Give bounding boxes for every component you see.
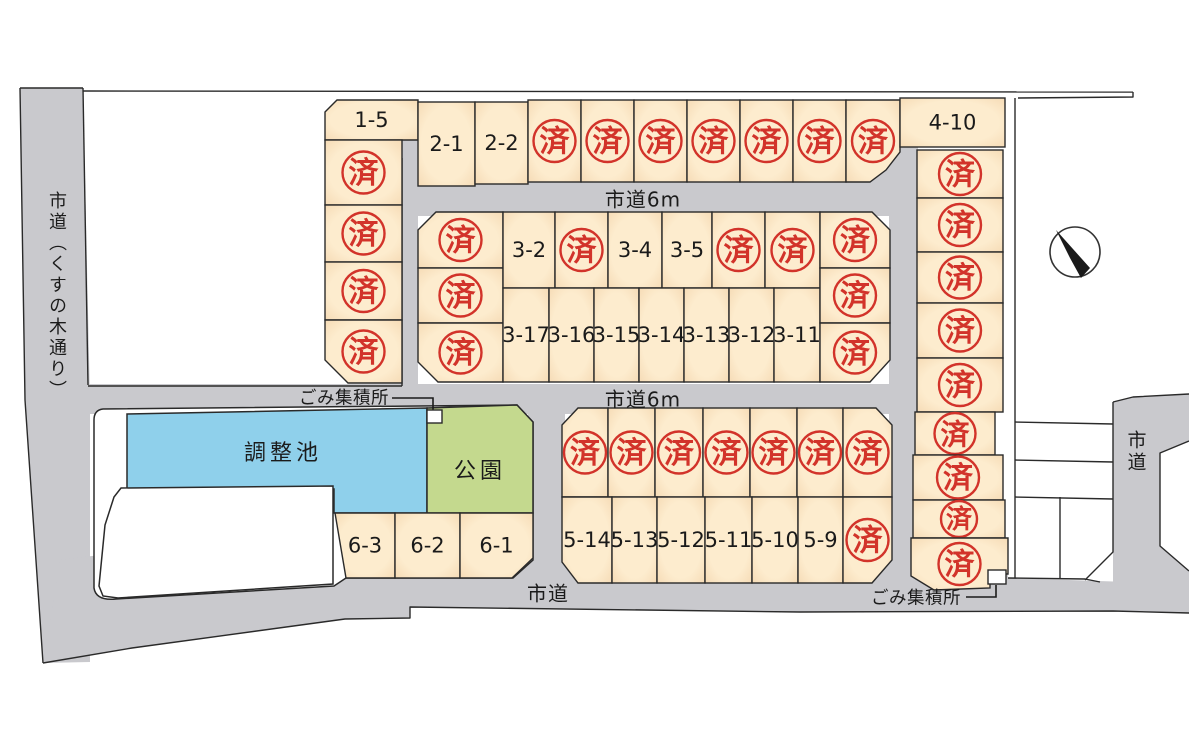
sold-stamp-text: 済 xyxy=(446,224,477,259)
sold-stamp-text: 済 xyxy=(805,436,836,471)
sold-stamp-text: 済 xyxy=(593,125,624,160)
road-right-label: 市道 xyxy=(1123,430,1150,474)
lot-number-label: 3-5 xyxy=(670,238,704,262)
garbage-bottom-square xyxy=(988,570,1006,584)
road-left-label: 市道（くすの木通り） xyxy=(43,191,69,401)
sold-stamp-text: 済 xyxy=(946,504,973,535)
road-connector-left xyxy=(402,145,418,414)
sold-stamp-text: 済 xyxy=(446,336,477,371)
sold-stamp-text: 済 xyxy=(805,125,836,160)
sold-stamp-text: 済 xyxy=(759,436,790,471)
lot-number-label: 3-2 xyxy=(512,238,546,262)
boundary-top-step xyxy=(1018,92,1133,98)
parcel-line-1 xyxy=(1015,422,1113,424)
lot-number-label: 3-11 xyxy=(773,323,821,347)
lot-number-label: 5-9 xyxy=(803,528,837,552)
sold-stamp-text: 済 xyxy=(349,335,380,370)
road-top-label: 市道6m xyxy=(605,184,681,213)
sold-stamp-text: 済 xyxy=(945,261,976,296)
lot-number-label: 2-1 xyxy=(429,132,463,156)
sold-stamp-text: 済 xyxy=(646,125,677,160)
lot-number-label: 5-13 xyxy=(611,528,659,552)
sold-stamp-text: 済 xyxy=(858,125,889,160)
sold-stamp-text: 済 xyxy=(570,436,601,471)
sold-stamp-text: 済 xyxy=(853,436,884,471)
map-canvas: 1-5済済済済2-12-2済済済済済済済4-10済済済3-2済3-43-5済済3… xyxy=(0,0,1189,734)
subdivision-map: 1-5済済済済2-12-2済済済済済済済4-10済済済3-2済3-43-5済済3… xyxy=(0,0,1189,734)
lot-number-label: 1-5 xyxy=(354,108,388,132)
sold-stamp-text: 済 xyxy=(752,125,783,160)
lot-number-label: 6-2 xyxy=(410,534,444,558)
park-label: 公園 xyxy=(454,453,506,485)
parcel-line-3 xyxy=(1015,497,1113,499)
sold-stamp-text: 済 xyxy=(446,279,477,314)
sold-stamp-text: 済 xyxy=(724,234,755,269)
lot-number-label: 3-16 xyxy=(548,323,596,347)
lot-number-label: 3-15 xyxy=(593,323,641,347)
lot-number-label: 3-4 xyxy=(618,238,652,262)
sold-stamp-text: 済 xyxy=(945,209,976,244)
sold-stamp-text: 済 xyxy=(349,217,380,252)
lot-number-label: 6-1 xyxy=(479,534,513,558)
lot-number-label: 3-12 xyxy=(728,323,776,347)
sold-stamp-text: 済 xyxy=(943,461,974,496)
lot-number-label: 2-2 xyxy=(484,131,518,155)
lot-number-label: 6-3 xyxy=(348,534,382,558)
sold-stamp-text: 済 xyxy=(840,336,871,371)
sold-stamp-text: 済 xyxy=(840,224,871,259)
road-bottom-label: 市道 xyxy=(527,578,569,607)
lot-number-label: 4-10 xyxy=(929,111,977,135)
lot-number-label: 3-14 xyxy=(638,323,686,347)
sold-stamp-text: 済 xyxy=(945,369,976,404)
compass-icon xyxy=(1050,227,1100,278)
sold-stamp-text: 済 xyxy=(940,418,970,452)
lot-number-label: 5-12 xyxy=(657,528,705,552)
lot-number-label: 3-17 xyxy=(502,323,550,347)
sold-stamp-text: 済 xyxy=(712,436,743,471)
sold-stamp-text: 済 xyxy=(349,156,380,191)
unlabeled-building-area xyxy=(99,486,333,598)
lot-number-label: 3-13 xyxy=(683,323,731,347)
parcel-line-2 xyxy=(1015,460,1113,462)
pond-label: 調整池 xyxy=(244,435,322,467)
sold-stamp-text: 済 xyxy=(664,436,695,471)
sold-stamp-text: 済 xyxy=(617,436,648,471)
road-right-west-edge xyxy=(1085,402,1113,580)
sold-stamp-text: 済 xyxy=(778,234,809,269)
boundary-top xyxy=(83,91,1133,92)
sold-stamp-text: 済 xyxy=(945,548,976,583)
garbage-top-label: ごみ集積所 xyxy=(299,385,389,410)
sold-stamp-text: 済 xyxy=(853,524,884,559)
sold-stamp-text: 済 xyxy=(945,314,976,349)
road-right xyxy=(1113,394,1189,600)
sold-stamp-text: 済 xyxy=(699,125,730,160)
road-middle-label: 市道6m xyxy=(605,384,681,413)
lot-number-label: 5-14 xyxy=(563,528,611,552)
lot-number-label: 5-10 xyxy=(751,528,799,552)
sold-stamp-text: 済 xyxy=(840,279,871,314)
sold-stamp-text: 済 xyxy=(945,158,976,193)
garbage-bottom-label: ごみ集積所 xyxy=(871,585,961,610)
sold-stamp-text: 済 xyxy=(540,125,571,160)
lot-number-label: 5-11 xyxy=(705,528,753,552)
garbage-top-square xyxy=(427,410,442,423)
sold-stamp-text: 済 xyxy=(567,234,598,269)
sold-stamp-text: 済 xyxy=(349,275,380,310)
